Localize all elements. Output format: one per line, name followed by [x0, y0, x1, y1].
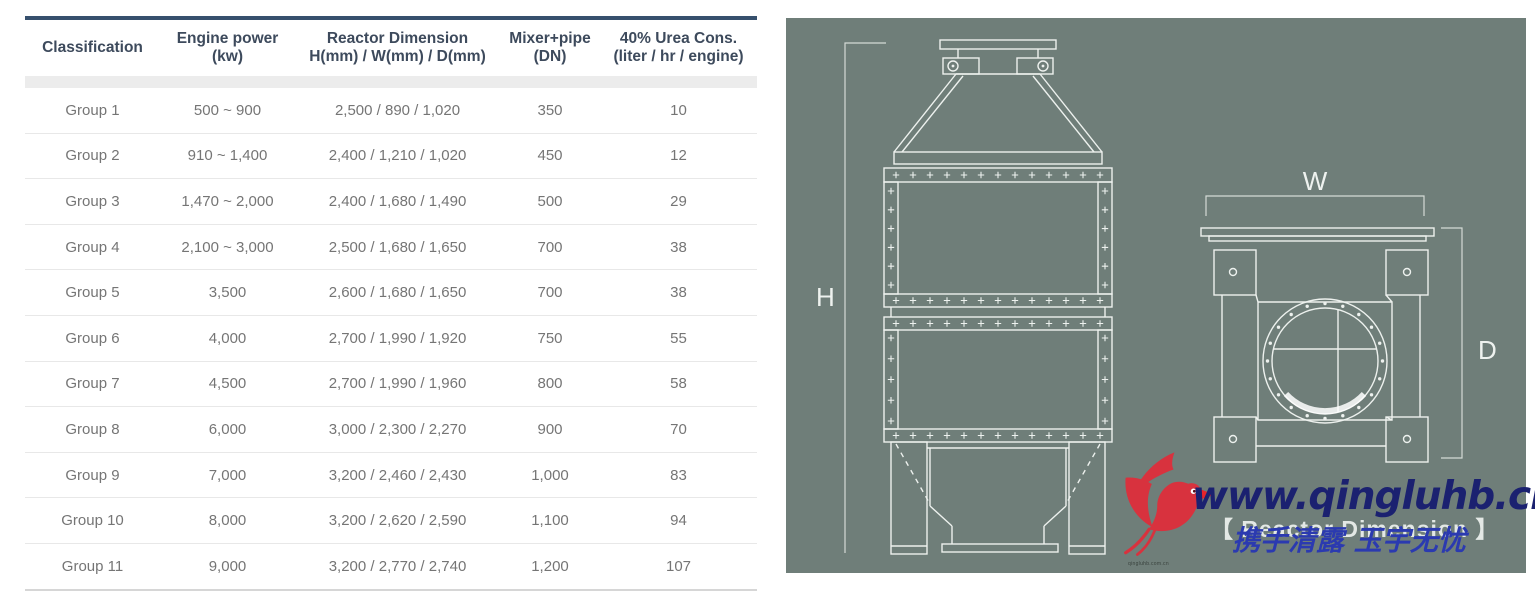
header-line2: H(mm) / W(mm) / D(mm) — [295, 48, 500, 66]
body1-right-flange — [1098, 182, 1112, 294]
cell-urea-consumption: 70 — [600, 407, 757, 453]
top-view-drawing: W D — [1201, 166, 1497, 462]
lug-pin-right — [1042, 65, 1045, 68]
table-row: Group 3 1,470 ~ 2,000 2,400 / 1,680 / 1,… — [25, 179, 757, 225]
cell-mixer-pipe: 1,000 — [500, 452, 600, 498]
cell-engine-power: 500 ~ 900 — [160, 82, 295, 133]
cell-reactor-dimension: 2,500 / 890 / 1,020 — [295, 82, 500, 133]
cell-reactor-dimension: 2,400 / 1,210 / 1,020 — [295, 133, 500, 179]
bolt-marks — [893, 320, 1103, 326]
column-header-mixer-pipe: Mixer+pipe (DN) — [500, 20, 600, 82]
cell-classification: Group 2 — [25, 133, 160, 179]
cell-classification: Group 4 — [25, 224, 160, 270]
cell-urea-consumption: 10 — [600, 82, 757, 133]
bird-tail-feather — [1126, 529, 1150, 553]
corner-pad-bl — [1214, 417, 1256, 462]
bolt-marks — [1102, 188, 1108, 288]
bolt-marks — [888, 188, 894, 288]
watermark-slogan: 携手清露 玉宇无忧 — [1232, 519, 1466, 559]
watermark-site-url: www.qingluhb.cn — [1192, 474, 1535, 519]
column-header-urea-consumption: 40% Urea Cons. (liter / hr / engine) — [600, 20, 757, 82]
header-line1: Classification — [25, 39, 160, 57]
cell-reactor-dimension: 2,500 / 1,680 / 1,650 — [295, 224, 500, 270]
section-joint — [891, 307, 1105, 317]
inlet-cone — [894, 74, 1102, 152]
header-line1: 40% Urea Cons. — [600, 30, 757, 48]
column-header-classification: Classification — [25, 20, 160, 82]
corner-pad-tl — [1214, 250, 1256, 295]
cell-urea-consumption: 83 — [600, 452, 757, 498]
cell-urea-consumption: 94 — [600, 498, 757, 544]
cell-reactor-dimension: 3,200 / 2,460 / 2,430 — [295, 452, 500, 498]
column-header-engine-power: Engine power (kw) — [160, 20, 295, 82]
header-line1: Reactor Dimension — [295, 30, 500, 48]
cell-classification: Group 3 — [25, 179, 160, 225]
cell-mixer-pipe: 1,200 — [500, 543, 600, 589]
manway-highlight — [1286, 394, 1364, 411]
pad-hole — [1230, 436, 1237, 443]
cell-mixer-pipe: 350 — [500, 82, 600, 133]
cell-engine-power: 4,000 — [160, 315, 295, 361]
cell-mixer-pipe: 700 — [500, 270, 600, 316]
dimension-label-w: W — [1303, 166, 1328, 196]
cell-reactor-dimension: 3,200 / 2,620 / 2,590 — [295, 498, 500, 544]
cell-classification: Group 9 — [25, 452, 160, 498]
cell-mixer-pipe: 750 — [500, 315, 600, 361]
cell-reactor-dimension: 2,600 / 1,680 / 1,650 — [295, 270, 500, 316]
cell-classification: Group 11 — [25, 543, 160, 589]
cell-engine-power: 6,000 — [160, 407, 295, 453]
cell-classification: Group 7 — [25, 361, 160, 407]
cell-classification: Group 6 — [25, 315, 160, 361]
bird-lower-wing — [1125, 477, 1152, 527]
cell-mixer-pipe: 700 — [500, 224, 600, 270]
cell-mixer-pipe: 500 — [500, 179, 600, 225]
spec-table: Classification Engine power (kw) Reactor… — [25, 16, 757, 591]
support-leg-right — [1069, 442, 1105, 554]
dimension-label-d: D — [1478, 335, 1497, 365]
header-line1: Engine power — [160, 30, 295, 48]
discharge-hopper — [927, 448, 1069, 544]
table-row: Group 11 9,000 3,200 / 2,770 / 2,740 1,2… — [25, 543, 757, 589]
cell-urea-consumption: 58 — [600, 361, 757, 407]
manway-outer-ring — [1263, 299, 1387, 423]
header-line2: (DN) — [500, 48, 600, 66]
front-view-drawing: H — [816, 40, 1112, 554]
column-header-reactor-dimension: Reactor Dimension H(mm) / W(mm) / D(mm) — [295, 20, 500, 82]
cell-classification: Group 10 — [25, 498, 160, 544]
pad-hole — [1404, 269, 1411, 276]
bolt-marks — [893, 432, 1103, 438]
cell-mixer-pipe: 450 — [500, 133, 600, 179]
cell-classification: Group 1 — [25, 82, 160, 133]
table-row: Group 6 4,000 2,700 / 1,990 / 1,920 750 … — [25, 315, 757, 361]
cell-urea-consumption: 38 — [600, 224, 757, 270]
support-leg-left — [891, 442, 927, 554]
cell-mixer-pipe: 1,100 — [500, 498, 600, 544]
cell-urea-consumption: 38 — [600, 270, 757, 316]
reactor-diagram-panel: H — [786, 18, 1526, 573]
bolt-marks — [888, 335, 894, 424]
bolt-marks — [893, 297, 1103, 303]
dimension-label-h: H — [816, 282, 835, 312]
table-row: Group 5 3,500 2,600 / 1,680 / 1,650 700 … — [25, 270, 757, 316]
header-line2: (kw) — [160, 48, 295, 66]
cell-engine-power: 8,000 — [160, 498, 295, 544]
cell-mixer-pipe: 900 — [500, 407, 600, 453]
header-line1: Mixer+pipe — [500, 30, 600, 48]
cell-reactor-dimension: 2,700 / 1,990 / 1,920 — [295, 315, 500, 361]
h-dimension-line — [845, 43, 886, 553]
table-row: Group 1 500 ~ 900 2,500 / 890 / 1,020 35… — [25, 82, 757, 133]
table-row: Group 4 2,100 ~ 3,000 2,500 / 1,680 / 1,… — [25, 224, 757, 270]
cell-reactor-dimension: 3,000 / 2,300 / 2,270 — [295, 407, 500, 453]
manway-bolt-dots — [1266, 302, 1384, 420]
table-row: Group 10 8,000 3,200 / 2,620 / 2,590 1,1… — [25, 498, 757, 544]
header-line2: (liter / hr / engine) — [600, 48, 757, 66]
cell-engine-power: 4,500 — [160, 361, 295, 407]
reactor-spec-table: Classification Engine power (kw) Reactor… — [25, 20, 757, 591]
d-dimension-line — [1441, 228, 1462, 458]
corner-pad-tr — [1386, 250, 1428, 295]
cell-engine-power: 9,000 — [160, 543, 295, 589]
cell-reactor-dimension: 3,200 / 2,770 / 2,740 — [295, 543, 500, 589]
cell-urea-consumption: 29 — [600, 179, 757, 225]
cell-urea-consumption: 12 — [600, 133, 757, 179]
cell-urea-consumption: 107 — [600, 543, 757, 589]
table-row: Group 8 6,000 3,000 / 2,300 / 2,270 900 … — [25, 407, 757, 453]
cell-classification: Group 8 — [25, 407, 160, 453]
cell-reactor-dimension: 2,700 / 1,990 / 1,960 — [295, 361, 500, 407]
cell-engine-power: 2,100 ~ 3,000 — [160, 224, 295, 270]
cell-classification: Group 5 — [25, 270, 160, 316]
header-row: Classification Engine power (kw) Reactor… — [25, 20, 757, 82]
cell-mixer-pipe: 800 — [500, 361, 600, 407]
spec-table-body: Group 1 500 ~ 900 2,500 / 890 / 1,020 35… — [25, 82, 757, 590]
bolt-marks — [893, 172, 1103, 178]
top-plate — [1201, 228, 1434, 236]
table-row: Group 7 4,500 2,700 / 1,990 / 1,960 800 … — [25, 361, 757, 407]
cone-rim — [894, 152, 1102, 164]
cell-engine-power: 7,000 — [160, 452, 295, 498]
cell-engine-power: 910 ~ 1,400 — [160, 133, 295, 179]
pad-hole — [1230, 269, 1237, 276]
corner-pad-br — [1386, 417, 1428, 462]
table-row: Group 9 7,000 3,200 / 2,460 / 2,430 1,00… — [25, 452, 757, 498]
page: Classification Engine power (kw) Reactor… — [0, 0, 1535, 597]
cell-engine-power: 3,500 — [160, 270, 295, 316]
lug-pin-left — [952, 65, 955, 68]
bolt-marks — [1102, 335, 1108, 424]
top-plate-inner — [1209, 236, 1426, 241]
w-dimension-line — [1206, 196, 1424, 216]
cell-engine-power: 1,470 ~ 2,000 — [160, 179, 295, 225]
outlet-flange — [942, 544, 1058, 552]
cell-urea-consumption: 55 — [600, 315, 757, 361]
flange-stems — [958, 49, 1038, 58]
cell-reactor-dimension: 2,400 / 1,680 / 1,490 — [295, 179, 500, 225]
body1-left-flange — [884, 182, 898, 294]
table-row: Group 2 910 ~ 1,400 2,400 / 1,210 / 1,02… — [25, 133, 757, 179]
pad-hole — [1404, 436, 1411, 443]
top-flange — [940, 40, 1056, 49]
